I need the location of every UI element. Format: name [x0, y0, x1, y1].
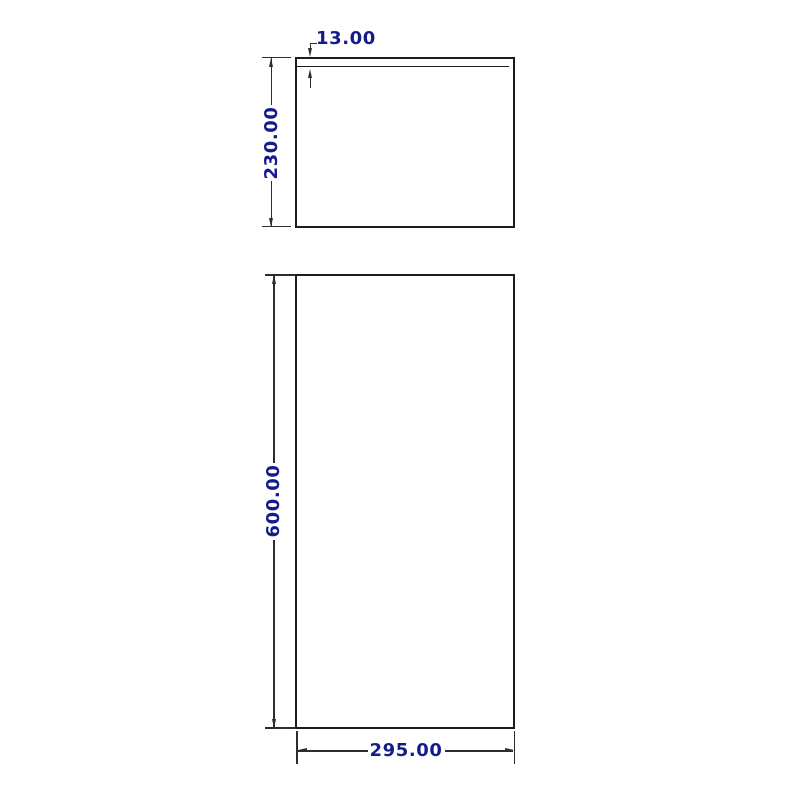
arrowhead-down-icon [269, 218, 273, 227]
dim-295-label: 295.00 [369, 742, 442, 760]
dim-600-extension-top [265, 274, 295, 276]
arrowhead-down-icon [272, 719, 276, 728]
dim-295-line-left [298, 750, 368, 751]
top-view-lid-line [297, 66, 509, 68]
arrowhead-up-icon [272, 275, 276, 284]
drawing-canvas: 13.00 230.00 600.00 295.00 [0, 0, 800, 800]
dim-600-extension-bottom [265, 727, 295, 729]
top-view-outline [295, 57, 515, 228]
dim-600-line-lower [273, 540, 274, 727]
front-view-outline [295, 274, 515, 729]
dim-230-label: 230.00 [263, 106, 281, 179]
arrowhead-right-icon [505, 748, 514, 752]
dim-295-line-right [445, 750, 513, 751]
dim-230-extension-tick-bottom [262, 226, 291, 228]
dim-600-label: 600.00 [265, 464, 283, 537]
dim-13-label: 13.00 [316, 30, 376, 48]
arrowhead-left-icon [298, 748, 307, 752]
dim-600-line-upper [273, 276, 274, 463]
arrowhead-down-icon [308, 48, 312, 57]
dim-13-tail [310, 76, 311, 88]
dim-230-extension-tick-top [262, 57, 291, 59]
arrowhead-up-icon [269, 58, 273, 67]
dim-295-extension-right [514, 731, 515, 764]
